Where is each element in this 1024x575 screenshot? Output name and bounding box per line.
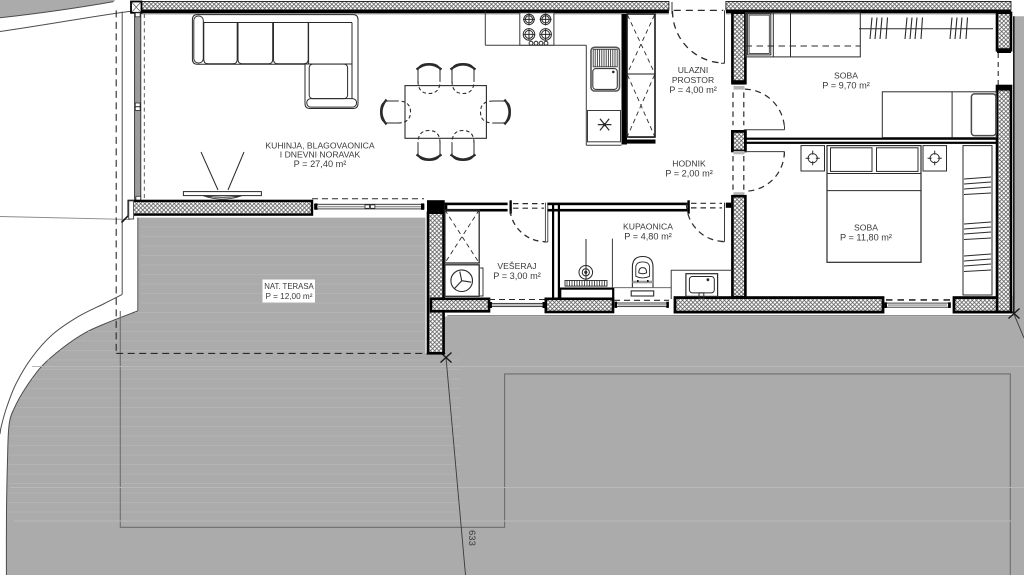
svg-text:P = 4,80 m²: P = 4,80 m²	[624, 232, 672, 242]
svg-text:SOBA: SOBA	[834, 71, 858, 81]
svg-text:KUPAONICA: KUPAONICA	[623, 222, 673, 232]
svg-text:NAT. TERASA: NAT. TERASA	[264, 282, 314, 291]
svg-text:P = 2,00 m²: P = 2,00 m²	[665, 169, 713, 179]
svg-text:P = 27,40 m²: P = 27,40 m²	[294, 159, 347, 169]
svg-text:633: 633	[466, 530, 477, 546]
svg-text:PROSTOR: PROSTOR	[672, 75, 714, 85]
svg-text:HODNIK: HODNIK	[672, 159, 706, 169]
svg-text:P = 9,70 m²: P = 9,70 m²	[822, 81, 870, 91]
svg-text:P = 4,00 m²: P = 4,00 m²	[669, 85, 717, 95]
svg-text:P = 12,00 m²: P = 12,00 m²	[266, 292, 313, 301]
svg-text:SOBA: SOBA	[854, 223, 878, 233]
svg-text:P = 3,00 m²: P = 3,00 m²	[493, 271, 541, 281]
svg-text:ULAZNI: ULAZNI	[678, 65, 709, 75]
svg-text:P = 11,80 m²: P = 11,80 m²	[840, 233, 892, 243]
svg-text:VEŠERAJ: VEŠERAJ	[497, 261, 536, 271]
